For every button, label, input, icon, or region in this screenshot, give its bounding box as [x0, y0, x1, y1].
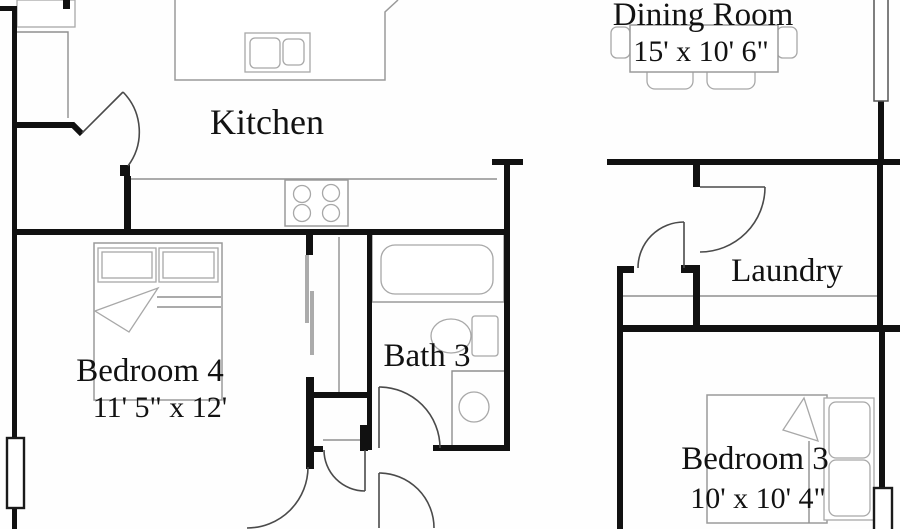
wall-segment [313, 446, 323, 452]
room-label-bedroom4: Bedroom 4 [76, 353, 224, 389]
wall-segment [306, 392, 372, 398]
bathtub-icon [372, 234, 504, 302]
wall-segment [879, 332, 885, 490]
door-laundry [700, 187, 765, 252]
wall-segment [12, 6, 17, 442]
wall-segment [877, 165, 883, 327]
wall-segment [12, 506, 17, 529]
floorplan-drawing: Kitchen Dining Room 15' x 10' 6" Laundry… [0, 0, 900, 529]
floorplan-canvas: Kitchen Dining Room 15' x 10' 6" Laundry… [0, 0, 900, 529]
door-bath3 [379, 387, 440, 448]
room-dims-bedroom3: 10' x 10' 4" [690, 482, 826, 515]
wall-segment [72, 124, 82, 134]
wall-segment [306, 235, 313, 255]
wall-segment [607, 159, 900, 165]
wall-segment [63, 0, 70, 9]
wall-segment [360, 425, 368, 451]
wall-segment [492, 159, 523, 165]
wall-segment [306, 377, 314, 469]
island-sink-icon [245, 33, 310, 72]
wall-segment [617, 325, 623, 529]
room-label-kitchen: Kitchen [210, 102, 324, 142]
wall-segment [504, 163, 510, 450]
room-label-bath3: Bath 3 [383, 338, 470, 374]
wall-segment [617, 266, 623, 327]
kitchen-counter-left [17, 32, 68, 118]
vanity-sink-icon [452, 371, 504, 445]
wall-segment [120, 165, 130, 176]
room-dims-bedroom4: 11' 5" x 12' [93, 391, 227, 424]
cooktop-icon [285, 180, 348, 226]
wall-segment [693, 165, 700, 187]
window-icon [874, 0, 888, 101]
room-label-bedroom3: Bedroom 3 [681, 441, 829, 477]
window-icon [874, 488, 892, 529]
door-hall-to-bedrooms [638, 222, 684, 268]
sliding-door-panel [310, 291, 314, 355]
door-hall-closet [324, 450, 365, 491]
sliding-door-panel [305, 255, 309, 323]
window-icon [7, 438, 24, 508]
wall-segment [124, 176, 131, 234]
wall-segment [693, 265, 700, 327]
wall-segment [367, 235, 372, 450]
room-label-laundry: Laundry [731, 253, 843, 289]
door-kitchen-corner [82, 92, 139, 166]
wall-segment [433, 445, 510, 451]
wall-segment [617, 325, 900, 332]
wall-segment [12, 229, 510, 235]
wall-segment [12, 122, 74, 128]
room-label-dining: Dining Room [613, 0, 794, 33]
door-bottom-left-arc [247, 467, 308, 528]
room-dims-dining: 15' x 10' 6" [633, 35, 769, 68]
door-bottom-center [379, 473, 434, 528]
wall-segment [878, 100, 884, 163]
